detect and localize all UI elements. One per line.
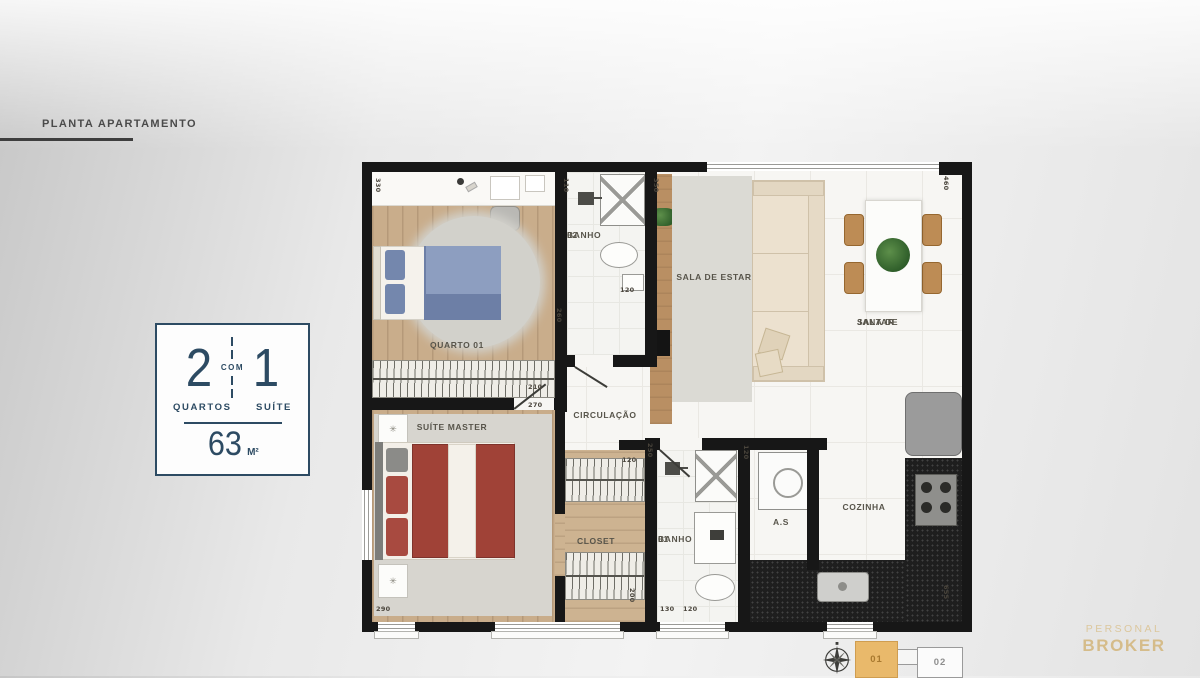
dimension-label: 210 [528, 383, 542, 391]
area-value: 63 [208, 426, 242, 462]
brand-logo: PERSONAL BROKER [1078, 623, 1170, 656]
logo-line2: BROKER [1078, 636, 1170, 656]
dash [231, 337, 233, 346]
dimension-label: 200 [628, 588, 636, 602]
window-sill [491, 631, 624, 639]
suite-label: SUÍTE [256, 402, 292, 413]
dimension-label: 460 [942, 176, 950, 190]
dash [231, 350, 233, 359]
unit-summary-box: 2 COM 1 QUARTOS SUÍTE 63 M² [155, 323, 310, 476]
dimension-label: 655 [942, 585, 950, 599]
dimension-label: 250 [646, 443, 654, 457]
title-underline [0, 138, 133, 141]
window-sill [656, 631, 729, 639]
dash [231, 376, 233, 385]
dimension-label: 130 [660, 605, 674, 613]
suites-count: 1 [253, 340, 279, 396]
dimension-label: 330 [374, 178, 382, 192]
unit-01-selector[interactable]: 01 [855, 641, 898, 678]
divider [184, 422, 282, 424]
compass-icon [818, 642, 856, 676]
dimension-label: 270 [528, 401, 542, 409]
dimension-label: 120 [622, 456, 636, 464]
window-sill [374, 631, 419, 639]
dimension-label: 290 [376, 605, 390, 613]
dimension-label: 260 [555, 308, 563, 322]
dash [231, 389, 233, 398]
dimension-label: 120 [620, 286, 634, 294]
window-sill [823, 631, 877, 639]
floor-plan: ✳ ✳ [362, 162, 972, 632]
dimension-label: 120 [683, 605, 697, 613]
logo-line1: PERSONAL [1078, 623, 1170, 635]
bedrooms-count: 2 [186, 340, 212, 396]
unit-02-selector[interactable]: 02 [917, 647, 963, 678]
dimension-layer: 3301103504601202602102702501201202002901… [362, 162, 972, 632]
area-unit: M² [247, 447, 259, 458]
dimension-label: 350 [652, 178, 660, 192]
dimension-label: 120 [742, 445, 750, 459]
dimension-label: 110 [562, 178, 570, 192]
connector-word: COM [221, 363, 244, 372]
page-title: PLANTA APARTAMENTO [42, 118, 197, 130]
bedrooms-label: QUARTOS [173, 402, 232, 413]
